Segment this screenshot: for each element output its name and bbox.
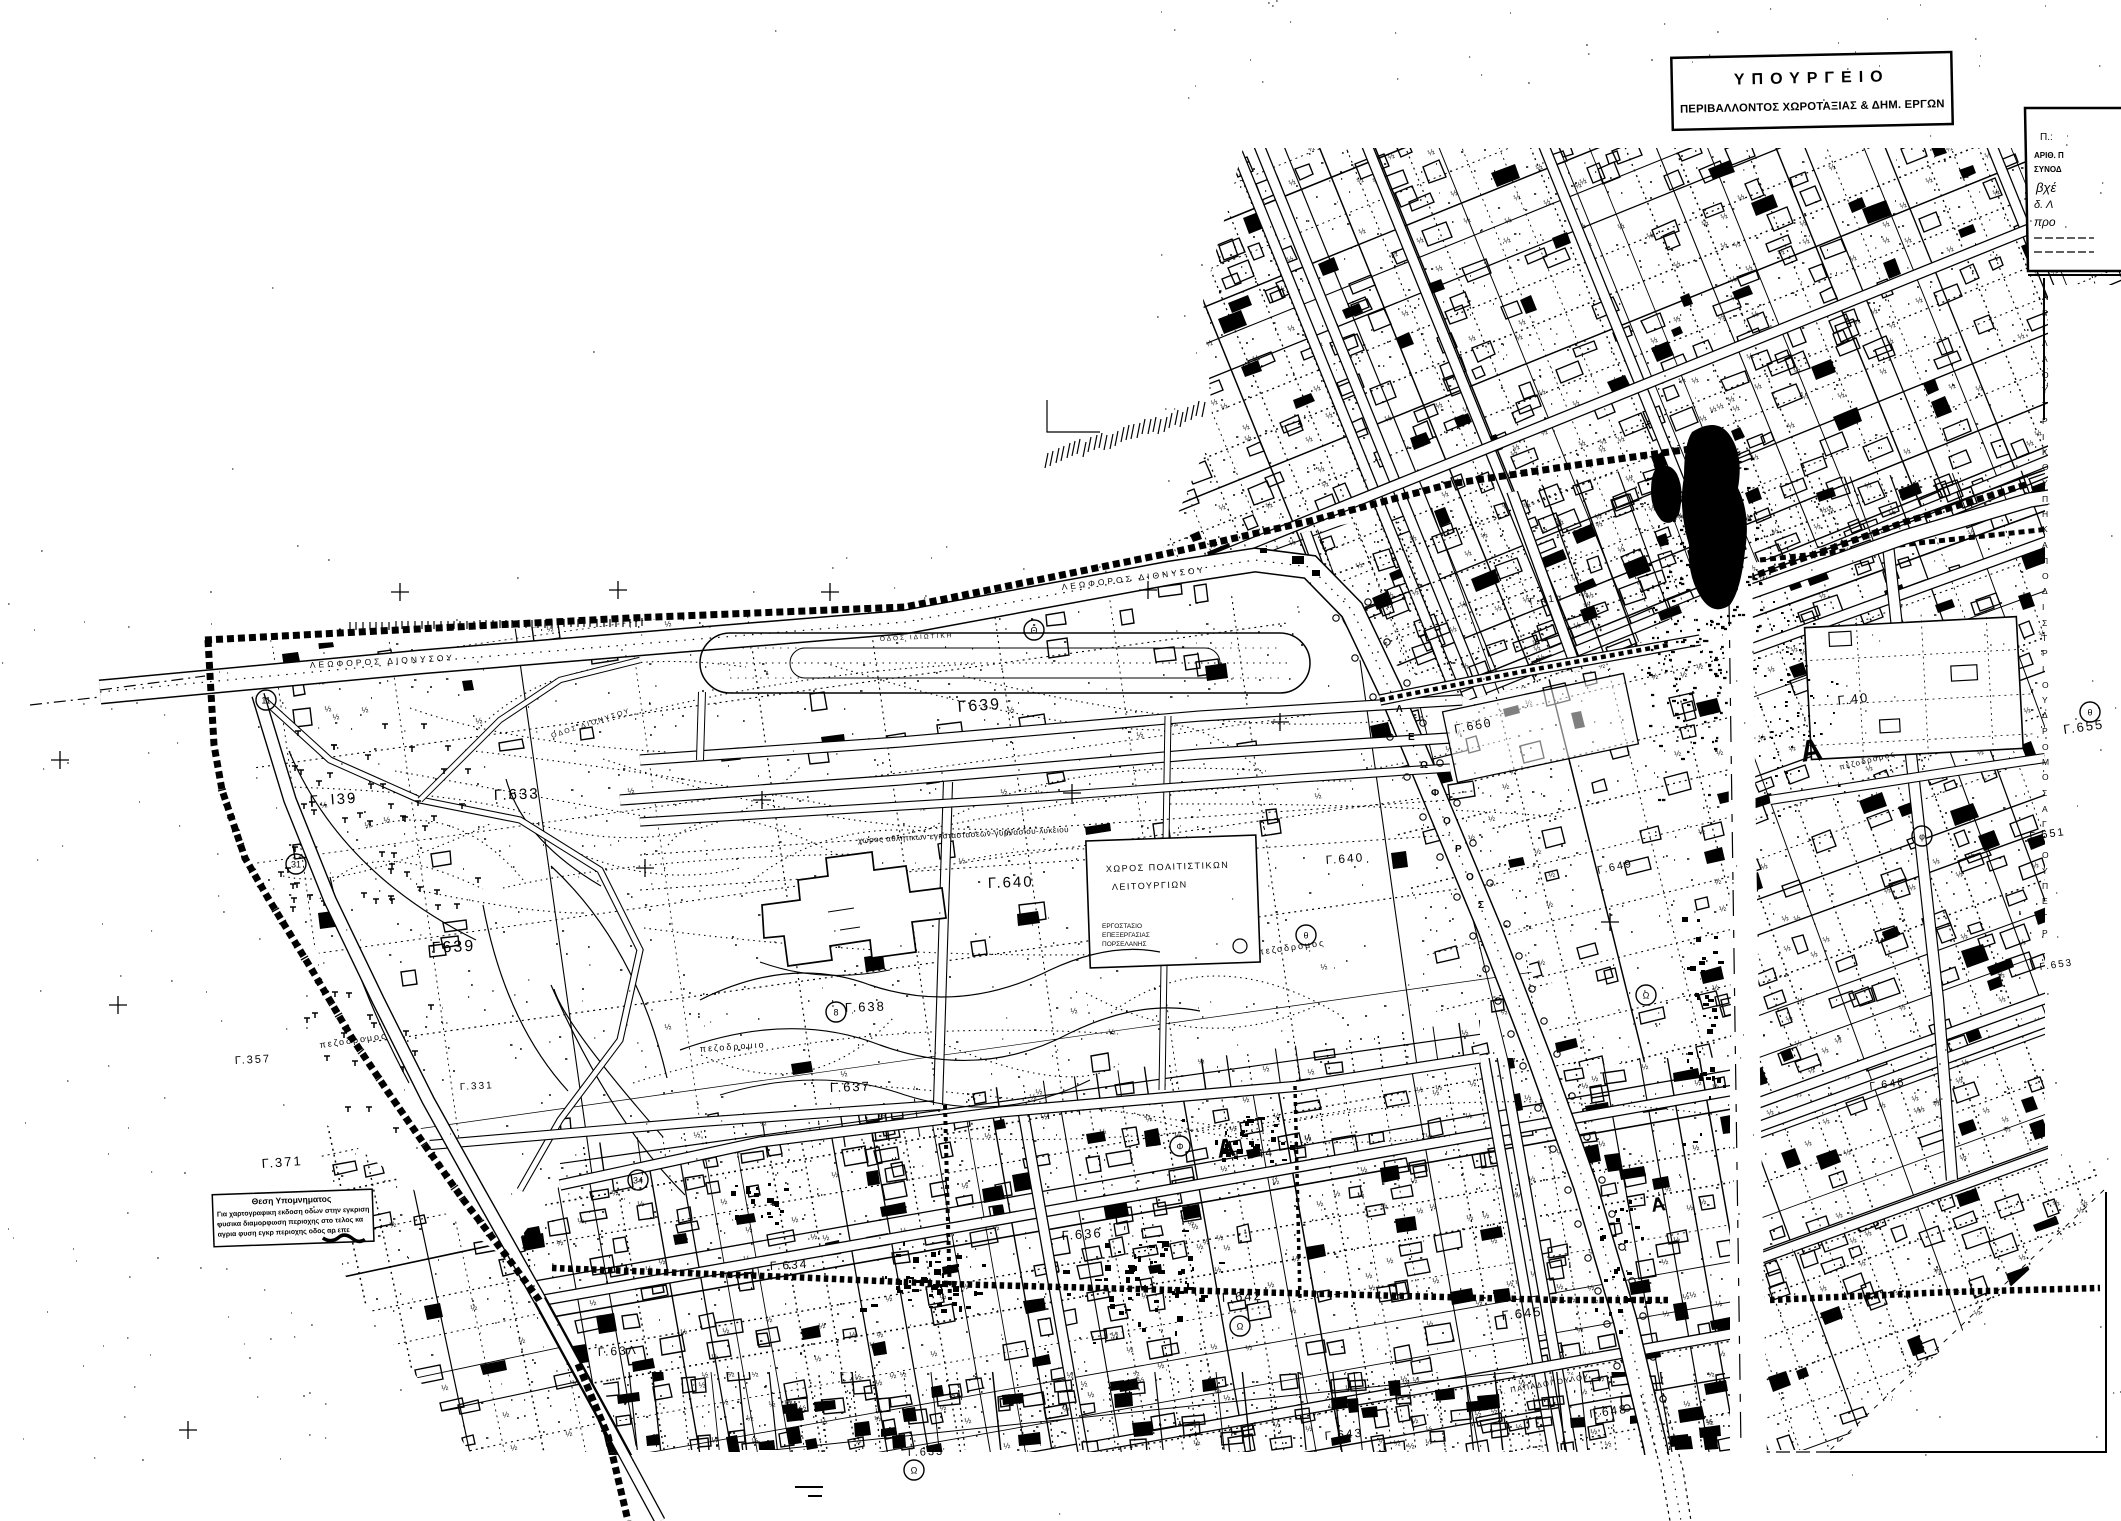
svg-text:Π: Π <box>2042 494 2048 504</box>
svg-text:Ρ: Ρ <box>1455 844 1462 855</box>
svg-text:½: ½ <box>1407 1441 1415 1451</box>
svg-text:Ρ: Ρ <box>2042 928 2048 938</box>
svg-text:½: ½ <box>1490 1406 1498 1416</box>
svg-text:½: ½ <box>746 1413 754 1423</box>
svg-text:βχέ: βχέ <box>2035 180 2057 195</box>
svg-text:προ: προ <box>2034 215 2056 229</box>
svg-text:Φ: Φ <box>1431 788 1439 799</box>
svg-text:Γ.633: Γ.633 <box>494 785 540 804</box>
svg-text:Α: Α <box>2042 292 2048 302</box>
svg-text:½: ½ <box>1515 1422 1523 1432</box>
svg-text:½: ½ <box>1080 1379 1088 1389</box>
svg-text:Σ: Σ <box>2042 618 2047 628</box>
svg-text:ΑΡΙΘ. Π: ΑΡΙΘ. Π <box>2034 151 2064 160</box>
svg-text:Σ: Σ <box>2042 788 2047 798</box>
svg-text:Γ.357: Γ.357 <box>235 1053 272 1067</box>
svg-text:A: A <box>1650 1193 1667 1217</box>
svg-text:Ρ: Ρ <box>2042 308 2048 318</box>
svg-text:Γ. Ι39: Γ. Ι39 <box>309 790 358 810</box>
svg-text:Ω: Ω <box>1420 760 1428 771</box>
svg-text:Ω: Ω <box>911 1466 918 1476</box>
svg-text:ΕΠΕΞΕΡΓΑΣΙΑΣ: ΕΠΕΞΕΡΓΑΣΙΑΣ <box>1102 932 1150 939</box>
svg-text:Κ: Κ <box>2042 524 2048 534</box>
svg-text:Γ.640: Γ.640 <box>1325 850 1365 867</box>
svg-text:Κ: Κ <box>2042 447 2048 457</box>
svg-text:Τ: Τ <box>2042 633 2047 643</box>
svg-text:Ε: Ε <box>1408 732 1415 743</box>
svg-text:½: ½ <box>1402 1378 1410 1388</box>
svg-text:Ι: Ι <box>2042 323 2044 333</box>
svg-text:Π: Π <box>2042 881 2048 891</box>
svg-text:θ: θ <box>2087 708 2092 718</box>
svg-text:Η: Η <box>2042 509 2048 519</box>
svg-text:½: ½ <box>698 1380 706 1390</box>
svg-text:Φ: Φ <box>1176 1142 1183 1152</box>
svg-text:Λ: Λ <box>2042 338 2048 348</box>
svg-text:½: ½ <box>1443 1391 1451 1401</box>
svg-text:Δ: Δ <box>2042 586 2048 596</box>
svg-text:½: ½ <box>768 1399 776 1409</box>
svg-text:11: 11 <box>261 696 270 706</box>
svg-text:Τ: Τ <box>2042 400 2047 410</box>
svg-text:Γ.633: Γ.633 <box>908 1446 945 1459</box>
svg-text:Ο: Ο <box>2042 462 2049 472</box>
svg-text:Α: Α <box>2042 540 2048 550</box>
svg-text:Γ639: Γ639 <box>957 696 1002 716</box>
svg-text:Ο: Ο <box>2042 571 2049 581</box>
svg-text:Γ.638: Γ.638 <box>845 999 887 1015</box>
svg-text:Ο: Ο <box>2042 680 2049 690</box>
svg-text:Ω: Ω <box>1643 991 1650 1001</box>
svg-text:Ε: Ε <box>2042 896 2048 906</box>
svg-text:½: ½ <box>1474 1409 1482 1419</box>
svg-text:Γ.642: Γ.642 <box>1221 1288 1263 1305</box>
svg-text:Σ: Σ <box>1478 900 1484 911</box>
svg-text:½: ½ <box>854 1372 862 1382</box>
svg-text:ΣΥΝΟΔ: ΣΥΝΟΔ <box>2034 165 2062 174</box>
svg-text:Ο: Ο <box>2042 772 2049 782</box>
svg-text:Ρ: Ρ <box>2042 648 2048 658</box>
svg-text:Ο: Ο <box>2042 370 2049 380</box>
svg-text:φ: φ <box>1919 832 1925 842</box>
svg-text:34: 34 <box>633 1176 643 1186</box>
svg-text:½: ½ <box>1412 1375 1420 1385</box>
svg-text:Α: Α <box>2042 804 2048 814</box>
svg-text:8: 8 <box>833 1008 838 1018</box>
svg-text:½: ½ <box>785 1397 793 1407</box>
svg-text:Γ: Γ <box>2042 819 2047 829</box>
svg-text:Ρ: Ρ <box>2042 726 2048 736</box>
svg-text:Υ: Υ <box>2042 385 2048 395</box>
svg-text:θ: θ <box>1303 931 1308 941</box>
svg-text:Ο: Ο <box>2042 850 2049 860</box>
svg-text:Γ639: Γ639 <box>431 938 475 957</box>
svg-text:Γ.371: Γ.371 <box>261 1153 303 1171</box>
svg-text:Π.:: Π.: <box>2040 132 2053 143</box>
svg-text:Υ: Υ <box>2042 478 2048 488</box>
svg-text:Γ.634: Γ.634 <box>769 1257 808 1273</box>
svg-text:Ο: Ο <box>1443 816 1451 827</box>
svg-text:Ι: Ι <box>2042 432 2044 442</box>
svg-text:Τ: Τ <box>2042 912 2047 922</box>
svg-text:Π: Π <box>2042 556 2048 566</box>
svg-text:Υ: Υ <box>2042 695 2048 705</box>
svg-text:Γ.63Λ: Γ.63Λ <box>597 1343 638 1359</box>
svg-text:Λ: Λ <box>1396 704 1403 715</box>
svg-text:Γ.331: Γ.331 <box>460 1080 494 1093</box>
svg-text:Ω: Ω <box>1237 1322 1244 1332</box>
svg-text:Ρ: Ρ <box>2042 416 2048 426</box>
svg-text:Ι: Ι <box>2042 602 2044 612</box>
svg-text:Θ: Θ <box>1030 626 1037 636</box>
svg-text:Α: Α <box>2042 354 2048 364</box>
svg-text:Υ: Υ <box>2042 866 2048 876</box>
svg-text:Γ.640: Γ.640 <box>988 873 1034 892</box>
svg-text:ΥΠΟΥΡΓΕΙΟ: ΥΠΟΥΡΓΕΙΟ <box>1734 68 1890 88</box>
svg-text:δ. Λ: δ. Λ <box>2034 199 2053 211</box>
svg-text:½: ½ <box>1393 1438 1401 1448</box>
svg-text:31: 31 <box>291 860 301 870</box>
svg-text:½: ½ <box>751 1436 759 1446</box>
svg-text:Γ.636: Γ.636 <box>1061 1225 1103 1243</box>
svg-text:Ο: Ο <box>1466 872 1474 883</box>
svg-text:Ο: Ο <box>2042 742 2049 752</box>
svg-text:½: ½ <box>1604 1439 1612 1449</box>
svg-text:Μ: Μ <box>2042 757 2049 767</box>
svg-text:ΕΡΓΟΣΤΑΣΙΟ: ΕΡΓΟΣΤΑΣΙΟ <box>1102 923 1142 930</box>
svg-text:½: ½ <box>1119 1392 1127 1402</box>
svg-text:½: ½ <box>1425 1424 1433 1434</box>
svg-text:½: ½ <box>721 1397 729 1407</box>
svg-text:Δ: Δ <box>2042 710 2048 720</box>
svg-text:Ι: Ι <box>2042 664 2044 674</box>
svg-text:½: ½ <box>1705 1417 1713 1427</box>
svg-text:ΠΟΡΣΕΛΑΝΗΣ: ΠΟΡΣΕΛΑΝΗΣ <box>1102 941 1147 948</box>
